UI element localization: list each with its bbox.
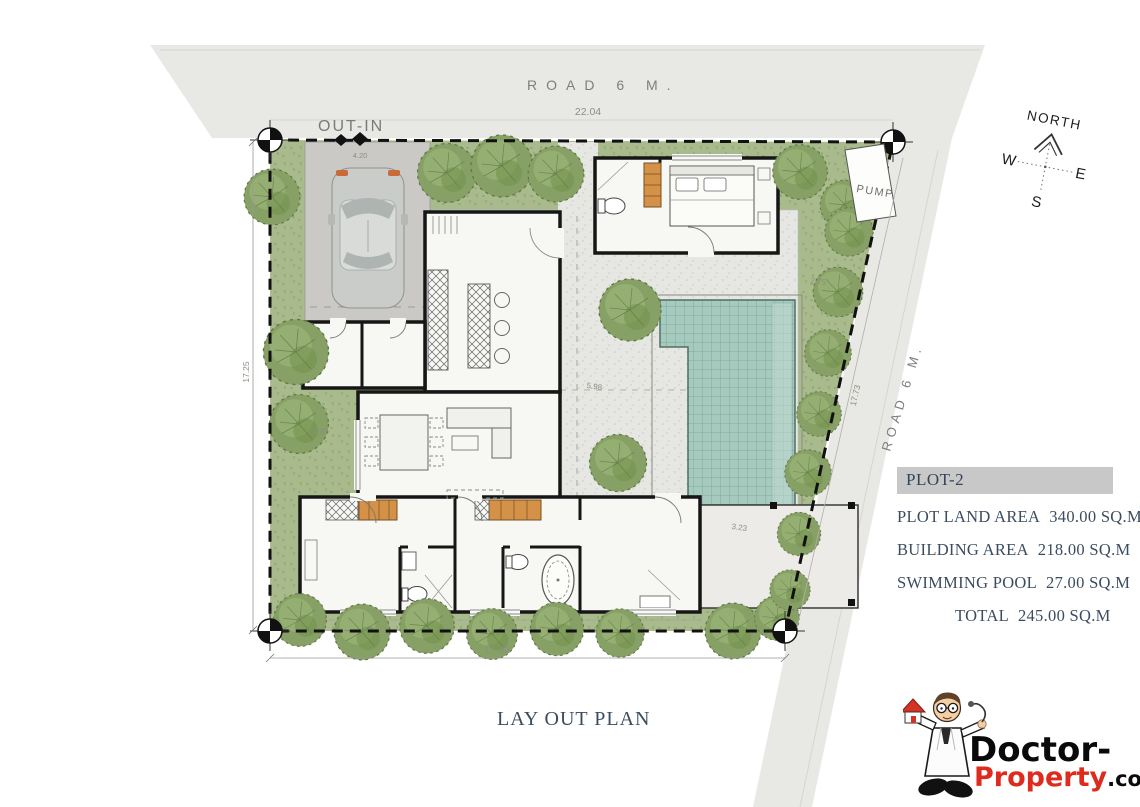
land-area-label: PLOT LAND AREA bbox=[897, 507, 1040, 526]
dim-setback-left: 3.95 bbox=[313, 427, 329, 436]
logo-text-coth: .co.th bbox=[1107, 767, 1140, 791]
swimming-pool-value: 27.00 SQ.M bbox=[1046, 573, 1130, 592]
layout-plan-page: PUMP 22.04 4.20 17.25 3.95 5.98 2.75 17.… bbox=[0, 0, 1140, 807]
north-arrow bbox=[1034, 132, 1065, 155]
dim-carport-width: 4.20 bbox=[353, 151, 368, 160]
building-area-label: BUILDING AREA bbox=[897, 540, 1029, 559]
logo-text-line2: Property.co.th bbox=[974, 762, 1140, 793]
compass-west: W bbox=[1000, 151, 1018, 171]
drawing-title: LAY OUT PLAN bbox=[497, 708, 651, 731]
doctor-property-logo: Doctor- Property.co.th bbox=[903, 690, 1139, 804]
plot-info-panel: PLOT-2 PLOT LAND AREA340.00 SQ.M BUILDIN… bbox=[897, 467, 1137, 626]
road-top-label: ROAD 6 M. bbox=[527, 77, 680, 93]
dim-side-bottom: 17.92 bbox=[484, 644, 510, 656]
site-plan-drawing: PUMP 22.04 4.20 17.25 3.95 5.98 2.75 17.… bbox=[0, 0, 1140, 807]
house-icon bbox=[903, 699, 925, 712]
compass-south: S bbox=[1030, 193, 1043, 212]
compass-east: E bbox=[1074, 165, 1087, 184]
out-in-label: OUT-IN bbox=[318, 118, 384, 135]
total-label: TOTAL bbox=[955, 606, 1009, 625]
plot-title: PLOT-2 bbox=[906, 470, 964, 489]
land-area-value: 340.00 SQ.M bbox=[1049, 507, 1140, 526]
info-row-total: TOTAL245.00 SQ.M bbox=[897, 606, 1137, 626]
swimming-pool-label: SWIMMING POOL bbox=[897, 573, 1037, 592]
car bbox=[328, 168, 408, 308]
dim-road-frontage: 22.04 bbox=[575, 106, 601, 118]
info-row-swimming-pool: SWIMMING POOL27.00 SQ.M bbox=[897, 573, 1137, 593]
compass: NORTH W E S bbox=[993, 104, 1096, 218]
info-row-land-area: PLOT LAND AREA340.00 SQ.M bbox=[897, 507, 1137, 527]
info-row-building-area: BUILDING AREA218.00 SQ.M bbox=[897, 540, 1137, 560]
dim-side-left: 17.25 bbox=[241, 361, 251, 383]
plot-title-bar: PLOT-2 bbox=[897, 467, 1113, 494]
logo-text-property: Property bbox=[974, 762, 1107, 793]
stethoscope-icon bbox=[972, 704, 985, 722]
compass-north: NORTH bbox=[1026, 108, 1083, 133]
total-value: 245.00 SQ.M bbox=[1018, 606, 1111, 625]
building-area-value: 218.00 SQ.M bbox=[1038, 540, 1131, 559]
